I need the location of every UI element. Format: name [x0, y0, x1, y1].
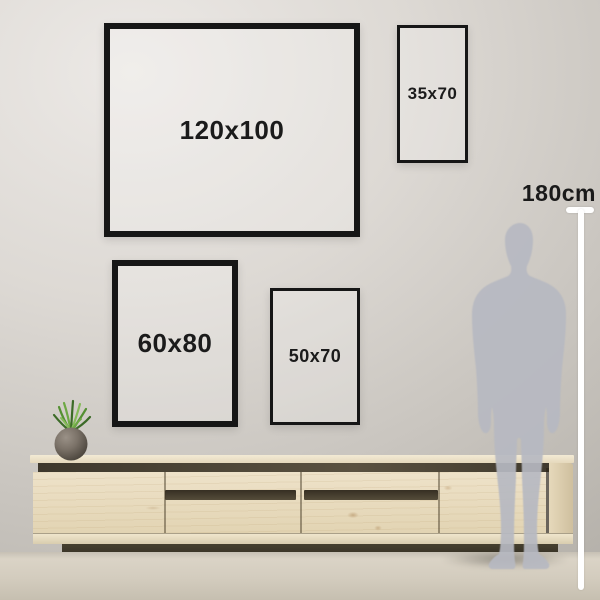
drawer-seam	[300, 472, 302, 533]
size-frame-60x80: 60x80	[112, 260, 238, 427]
drawer-seam	[438, 472, 440, 533]
potted-plant	[50, 399, 92, 461]
size-frame-50x70: 50x70	[270, 288, 360, 425]
frame-size-label: 60x80	[138, 328, 213, 359]
drawer-handle-groove-left	[165, 490, 296, 500]
size-guide-scene: 120x100 35x70 60x80 50x70	[0, 0, 600, 600]
height-label: 180cm	[512, 180, 596, 207]
size-frame-35x70: 35x70	[397, 25, 468, 163]
plant-leaves-icon	[54, 401, 90, 432]
size-frame-120x100: 120x100	[104, 23, 360, 237]
drawer-handle-groove-right	[304, 490, 438, 500]
frame-size-label: 120x100	[180, 115, 285, 146]
plant-pot	[55, 428, 88, 461]
height-measure-line	[578, 209, 584, 590]
drawer-seam	[164, 472, 166, 533]
frame-size-label: 50x70	[289, 346, 342, 367]
person-silhouette	[467, 220, 571, 572]
frame-size-label: 35x70	[408, 84, 458, 104]
